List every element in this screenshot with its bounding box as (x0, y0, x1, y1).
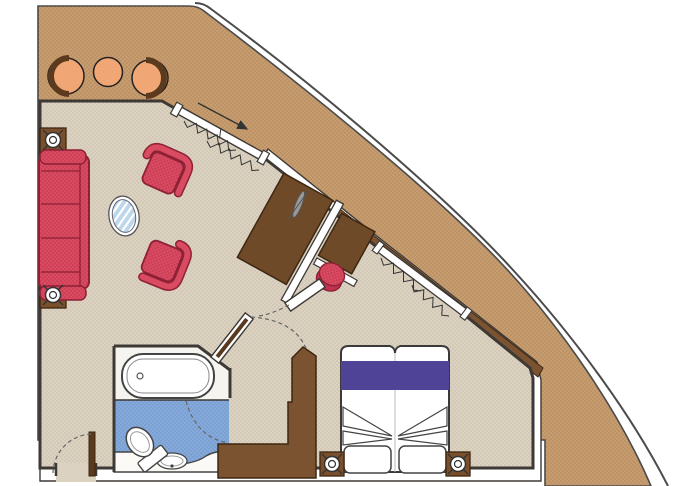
double-bed (341, 346, 449, 473)
floor-plan-svg (0, 0, 680, 486)
circle-cross-fixture (43, 285, 63, 305)
balcony-barrel-chair-left (48, 58, 84, 94)
sofa (39, 150, 89, 300)
entry-door-leaf (89, 432, 95, 476)
bed-blanket-band (341, 361, 449, 390)
circle-cross-fixture (43, 130, 63, 150)
bathroom (114, 346, 230, 473)
bed-pillow-right (399, 446, 446, 473)
balcony-barrel-chair-right (132, 60, 168, 96)
sofa-armrest-top (40, 150, 86, 164)
suite-floor-plan (0, 0, 680, 486)
sink-faucet (170, 464, 173, 467)
bed-pillow-left (344, 446, 391, 473)
circle-cross-fixture (322, 454, 342, 474)
circle-cross-fixture (448, 454, 468, 474)
balcony-round-table (94, 58, 123, 87)
bathtub (122, 354, 214, 398)
